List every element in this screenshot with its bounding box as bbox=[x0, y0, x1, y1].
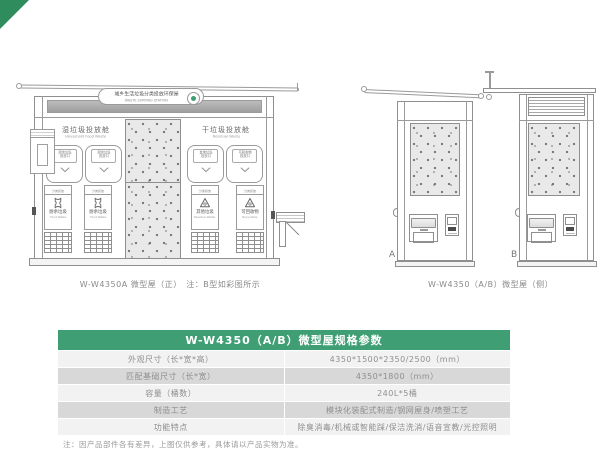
front-right-pillar bbox=[266, 96, 267, 258]
hopper-door bbox=[531, 232, 552, 243]
hopper-lid bbox=[529, 218, 554, 228]
table-row: 容量（桶数） 240L*5桶 bbox=[58, 385, 510, 402]
row-label: 制造工艺 bbox=[58, 402, 285, 418]
door-label: 其他垃圾投放口 bbox=[198, 151, 213, 158]
row-label: 功能特点 bbox=[58, 419, 285, 435]
table-row: 制造工艺 模块化装配式制造/钢网屋身/喷塑工艺 bbox=[58, 402, 510, 419]
sign-title: 城乡生活垃圾分类投放环保屋 bbox=[114, 89, 178, 96]
hopper-lid bbox=[411, 218, 436, 228]
row-label: 匹配基础尺寸（长*宽） bbox=[58, 368, 285, 384]
bin-header: 分类投放 bbox=[44, 185, 72, 195]
door-label-box: 其他垃圾投放口 bbox=[193, 149, 218, 163]
bin-recyclable: 分类投放 可回收物 Recyclable bbox=[236, 185, 264, 253]
bin-header-label: 分类投放 bbox=[244, 188, 256, 193]
side-b-hopper bbox=[527, 214, 556, 242]
bin-name-en: Recyclable bbox=[242, 217, 257, 219]
side-b-bracket-left bbox=[486, 94, 492, 100]
row-label: 容量（桶数） bbox=[58, 385, 285, 401]
side-view-caption: W-W4350（A/B）微型屋（侧） bbox=[428, 279, 553, 290]
chevron-down-icon bbox=[60, 167, 70, 173]
door-label-box: 厨余垃圾投放口 bbox=[91, 149, 116, 163]
side-a-control-panel bbox=[445, 214, 459, 236]
center-glass-panel bbox=[125, 119, 181, 258]
deposit-door-3: 其他垃圾投放口 bbox=[187, 145, 224, 183]
bin-name: 其他垃圾 bbox=[196, 210, 214, 213]
side-b-vent-louver bbox=[528, 97, 585, 116]
side-a-label: A bbox=[389, 250, 395, 260]
side-a-wall-line-right bbox=[466, 101, 467, 261]
bin-name-en: Food Waste bbox=[50, 217, 66, 219]
control-button bbox=[565, 217, 575, 225]
hopper-handle bbox=[538, 229, 546, 231]
station-sign: 城乡生活垃圾分类投放环保屋 WASTE SORTING STATION bbox=[98, 88, 204, 105]
side-b-handle-bump bbox=[515, 208, 519, 217]
side-washbasin bbox=[276, 212, 306, 248]
spec-table-title: W-W4350（A/B）微型屋规格参数 bbox=[58, 330, 510, 351]
hopper-door bbox=[413, 232, 434, 243]
sign-subtitle: WASTE SORTING STATION bbox=[124, 98, 167, 102]
side-a-canopy bbox=[364, 89, 484, 98]
electrical-box bbox=[30, 129, 55, 174]
bin-louver-grid bbox=[44, 232, 72, 253]
door-label-box: 可回收物投放口 bbox=[232, 149, 257, 163]
bin-name: 厨余垃圾 bbox=[49, 210, 67, 213]
bin-louver-grid bbox=[84, 232, 112, 253]
sign-subtitle-row: WASTE SORTING STATION bbox=[95, 97, 198, 104]
side-a-roll-right bbox=[478, 93, 484, 99]
footnote: 注：因产品部件各有差异，上图仅供参考，具体请以产品实物为准。 bbox=[63, 439, 303, 450]
side-a-hopper bbox=[409, 214, 438, 242]
bin-header: 分类投放 bbox=[84, 185, 112, 195]
side-a-top-band bbox=[397, 120, 473, 121]
bin-header-label: 分类投放 bbox=[92, 188, 104, 193]
control-label-line bbox=[448, 233, 457, 234]
bin-residual-waste: 分类投放 其他垃圾 Residual Waste bbox=[191, 185, 219, 253]
side-b-pole-cap bbox=[485, 71, 494, 73]
side-b-control-panel bbox=[563, 214, 577, 236]
eco-logo-icon bbox=[187, 92, 200, 105]
bin-body: 可回收物 Recyclable bbox=[236, 195, 264, 230]
front-divider-line bbox=[34, 117, 274, 118]
bin-food-waste-1: 分类投放 厨余垃圾 Food Waste bbox=[44, 185, 72, 253]
glass-panel-top bbox=[126, 120, 180, 183]
bin-header: 分类投放 bbox=[191, 185, 219, 195]
section-right-head: 干垃圾投放舱 Residual Waste bbox=[186, 126, 266, 143]
bin-food-waste-2: 分类投放 厨余垃圾 Food Waste bbox=[84, 185, 112, 253]
side-b-plinth bbox=[517, 261, 597, 267]
control-screen bbox=[448, 227, 456, 231]
bin-name: 可回收物 bbox=[241, 210, 259, 213]
chevron-down-icon bbox=[201, 167, 211, 173]
bin-body: 其他垃圾 Residual Waste bbox=[191, 195, 219, 230]
table-row: 外观尺寸（长*宽*高） 4350*1500*2350/2500（mm） bbox=[58, 351, 510, 368]
recycle-triangle-icon bbox=[244, 197, 256, 209]
hopper-handle bbox=[420, 229, 428, 231]
side-b-pole bbox=[489, 72, 491, 89]
hinge-left bbox=[32, 207, 36, 215]
door-label: 厨余垃圾投放口 bbox=[96, 151, 111, 158]
side-a-handle-bump bbox=[393, 208, 397, 217]
section-left-subtitle: Household Food Waste bbox=[66, 135, 107, 139]
recycle-triangle-icon bbox=[199, 197, 211, 209]
bin-header-label: 分类投放 bbox=[199, 188, 211, 193]
chevron-down-icon bbox=[240, 167, 250, 173]
control-button bbox=[447, 217, 457, 225]
bin-header: 分类投放 bbox=[236, 185, 264, 195]
electrical-box-label bbox=[31, 130, 54, 138]
table-row: 功能特点 除臭消毒/机械或智能踩/保洁洗消/语音宣教/光控照明 bbox=[58, 419, 510, 436]
side-a-plinth bbox=[395, 261, 475, 267]
row-value: 4350*1800（mm） bbox=[285, 368, 511, 384]
section-left-head: 湿垃圾投放舱 Household Food Waste bbox=[46, 126, 126, 143]
side-b-label: B bbox=[511, 250, 517, 260]
door-label: 可回收物投放口 bbox=[237, 151, 252, 158]
control-screen bbox=[566, 227, 574, 231]
front-view-caption: W-W4350A 微型屋（正） 注：B型如彩图所示 bbox=[30, 279, 310, 290]
row-value: 除臭消毒/机械或智能踩/保洁洗消/语音宣教/光控照明 bbox=[285, 419, 511, 435]
front-left-pillar bbox=[42, 96, 43, 258]
bin-louver-grid bbox=[236, 232, 264, 253]
row-label: 外观尺寸（长*宽*高） bbox=[58, 351, 285, 367]
side-a-roll-left bbox=[361, 86, 367, 92]
side-a-wall-line-left bbox=[404, 101, 405, 261]
deposit-door-4: 可回收物投放口 bbox=[226, 145, 263, 183]
bin-body: 厨余垃圾 Food Waste bbox=[44, 195, 72, 230]
side-b-top-band bbox=[519, 120, 594, 121]
deposit-door-2: 厨余垃圾投放口 bbox=[85, 145, 122, 183]
canopy-end-tick bbox=[297, 83, 298, 91]
product-spec-sheet: 城乡生活垃圾分类投放环保屋 WASTE SORTING STATION 湿垃圾投… bbox=[0, 0, 600, 460]
table-row: 匹配基础尺寸（长*宽） 4350*1800（mm） bbox=[58, 368, 510, 385]
chevron-down-icon bbox=[99, 167, 109, 173]
front-plinth bbox=[29, 258, 280, 266]
bin-louver-grid bbox=[191, 232, 219, 253]
corner-fold-decoration bbox=[0, 0, 29, 29]
spec-table-body: 外观尺寸（长*宽*高） 4350*1500*2350/2500（mm） 匹配基础… bbox=[58, 351, 510, 436]
side-b-glass-panel bbox=[528, 123, 580, 196]
section-right-subtitle: Residual Waste bbox=[212, 135, 239, 139]
door-label: 厨余垃圾投放口 bbox=[57, 151, 72, 158]
food-waste-icon bbox=[92, 197, 104, 209]
row-value: 240L*5桶 bbox=[285, 385, 511, 401]
spec-table: W-W4350（A/B）微型屋规格参数 外观尺寸（长*宽*高） 4350*150… bbox=[58, 330, 510, 436]
bin-name: 厨余垃圾 bbox=[89, 210, 107, 213]
electrical-box-slot bbox=[37, 144, 48, 166]
side-a-glass-panel bbox=[410, 123, 460, 196]
door-label-box: 厨余垃圾投放口 bbox=[52, 149, 77, 163]
glass-panel-bottom bbox=[126, 183, 180, 258]
canopy-roll-left bbox=[16, 83, 22, 89]
bin-name-en: Food Waste bbox=[90, 217, 106, 219]
row-value: 模块化装配式制造/钢网屋身/喷塑工艺 bbox=[285, 402, 511, 418]
row-value: 4350*1500*2350/2500（mm） bbox=[285, 351, 511, 367]
side-b-roof bbox=[483, 88, 596, 93]
food-waste-icon bbox=[52, 197, 64, 209]
bin-header-label: 分类投放 bbox=[52, 188, 64, 193]
washbasin-strut bbox=[285, 221, 299, 235]
control-label-line bbox=[566, 233, 575, 234]
bin-body: 厨余垃圾 Food Waste bbox=[84, 195, 112, 230]
hinge-right bbox=[271, 211, 275, 219]
bin-name-en: Residual Waste bbox=[194, 217, 215, 219]
